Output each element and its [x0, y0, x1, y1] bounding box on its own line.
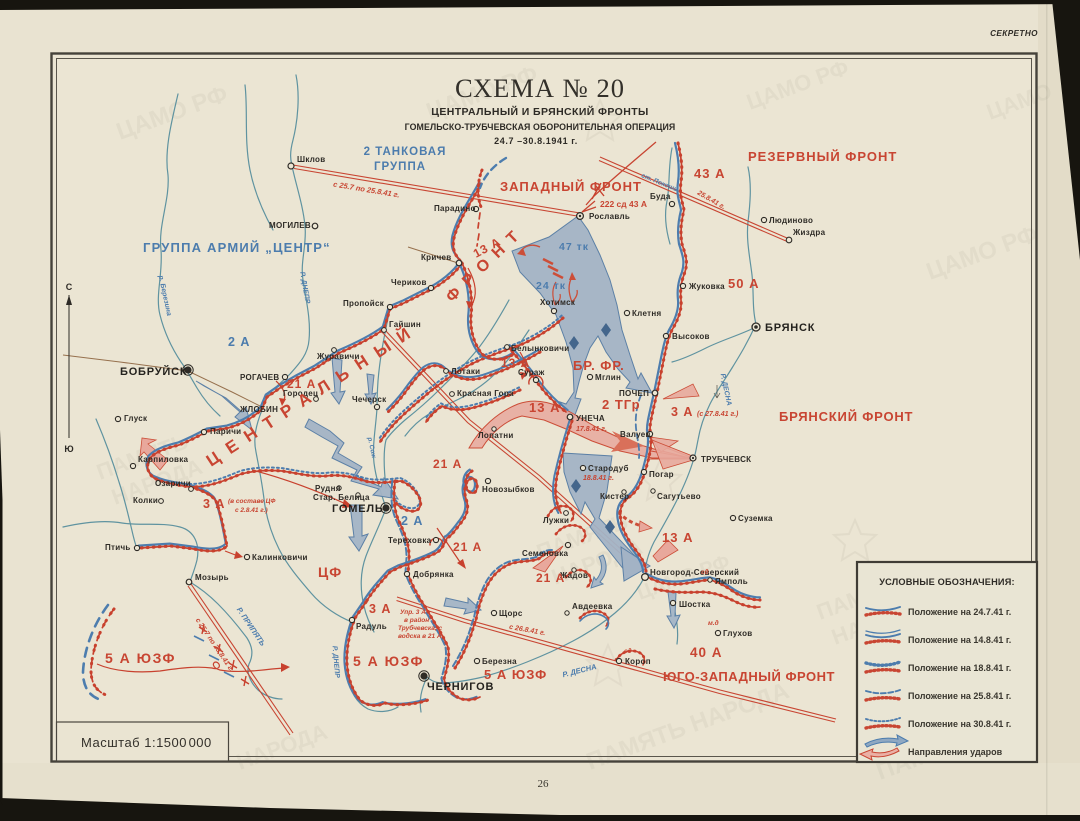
svg-text:Положение на 14.8.41 г.: Положение на 14.8.41 г.: [908, 635, 1011, 645]
svg-text:5 А ЮЗФ: 5 А ЮЗФ: [353, 653, 424, 669]
svg-text:Лужки: Лужки: [543, 516, 569, 525]
svg-text:Лопатни: Лопатни: [478, 431, 514, 440]
svg-text:Белынковичи: Белынковичи: [511, 344, 569, 353]
svg-text:Птичь: Птичь: [105, 543, 131, 552]
svg-text:Стародуб: Стародуб: [588, 464, 629, 473]
svg-text:Масштаб 1:1500 000: Масштаб 1:1500 000: [81, 735, 212, 750]
svg-text:Кричев: Кричев: [421, 253, 452, 262]
svg-text:Суземка: Суземка: [738, 514, 773, 523]
svg-text:21 А: 21 А: [453, 540, 482, 554]
svg-text:Тереховка: Тереховка: [388, 536, 432, 545]
svg-text:Положение на 30.8.41 г.: Положение на 30.8.41 г.: [908, 719, 1011, 729]
svg-text:ГОМЕЛЬСКО-ТРУБЧЕВСКАЯ ОБОРОНИ: ГОМЕЛЬСКО-ТРУБЧЕВСКАЯ ОБОРОНИТЕЛЬНАЯ ОПЕ…: [405, 122, 676, 132]
svg-text:БРЯНСК: БРЯНСК: [765, 322, 815, 334]
svg-text:Короп: Короп: [625, 657, 651, 666]
svg-text:Пропойск: Пропойск: [343, 299, 385, 308]
svg-text:Ямполь: Ямполь: [715, 577, 748, 586]
svg-text:5 А ЮЗФ: 5 А ЮЗФ: [105, 650, 176, 666]
svg-text:Добрянка: Добрянка: [413, 570, 454, 579]
svg-text:21 А: 21 А: [433, 457, 462, 471]
svg-text:3 А: 3 А: [369, 602, 391, 616]
svg-text:с 2.8.41 г.): с 2.8.41 г.): [235, 507, 268, 514]
svg-text:Высоков: Высоков: [672, 332, 710, 341]
svg-text:5 А ЮЗФ: 5 А ЮЗФ: [484, 667, 547, 682]
svg-text:3 А: 3 А: [203, 497, 225, 511]
svg-text:Озаричи: Озаричи: [155, 479, 191, 488]
svg-text:Шклов: Шклов: [297, 155, 325, 164]
svg-text:МОГИЛЕВ: МОГИЛЕВ: [269, 221, 311, 230]
svg-text:Жуковка: Жуковка: [688, 282, 725, 291]
svg-text:УСЛОВНЫЕ ОБОЗНАЧЕНИЯ:: УСЛОВНЫЕ ОБОЗНАЧЕНИЯ:: [879, 577, 1015, 587]
svg-text:Хотимск: Хотимск: [540, 298, 576, 307]
svg-text:Погар: Погар: [649, 470, 674, 479]
svg-text:Шостка: Шостка: [679, 600, 711, 609]
svg-text:Рудня: Рудня: [315, 484, 341, 493]
svg-text:Глухов: Глухов: [723, 629, 753, 638]
svg-text:Жиздра: Жиздра: [792, 228, 826, 237]
svg-text:Колки: Колки: [133, 496, 158, 505]
svg-text:2 А: 2 А: [401, 514, 423, 528]
svg-text:СХЕМА № 20: СХЕМА № 20: [455, 73, 625, 103]
svg-text:Положение на 25.8.41 г.: Положение на 25.8.41 г.: [908, 691, 1011, 701]
svg-text:Мглин: Мглин: [595, 373, 621, 382]
svg-text:Парадино: Парадино: [434, 204, 476, 213]
svg-text:Березна: Березна: [482, 657, 517, 666]
svg-text:ТРУБЧЕВСК: ТРУБЧЕВСК: [701, 455, 751, 464]
svg-text:Глуск: Глуск: [124, 414, 148, 423]
svg-text:УНЕЧА: УНЕЧА: [576, 414, 605, 423]
svg-text:Положение на 18.8.41 г.: Положение на 18.8.41 г.: [908, 663, 1011, 673]
svg-text:Ю: Ю: [64, 444, 73, 454]
svg-text:47 тк: 47 тк: [559, 241, 589, 253]
svg-text:Рославль: Рославль: [589, 212, 630, 221]
svg-text:13 А: 13 А: [501, 356, 530, 370]
svg-text:ЮГО-ЗАПАДНЫЙ ФРОНТ: ЮГО-ЗАПАДНЫЙ ФРОНТ: [663, 669, 835, 684]
svg-text:Семеновка: Семеновка: [522, 549, 569, 558]
svg-text:Авдеевка: Авдеевка: [572, 602, 613, 611]
svg-text:БРЯНСКИЙ ФРОНТ: БРЯНСКИЙ ФРОНТ: [779, 409, 913, 424]
svg-text:Кистер: Кистер: [600, 492, 629, 501]
svg-text:ГОМЕЛЬ: ГОМЕЛЬ: [332, 503, 384, 515]
svg-text:Сагутьево: Сагутьево: [657, 492, 701, 501]
svg-text:17.8.41 г.: 17.8.41 г.: [576, 426, 607, 433]
svg-text:Чериков: Чериков: [391, 278, 427, 287]
svg-text:Новгород-Северский: Новгород-Северский: [650, 568, 739, 577]
svg-text:Чечерск: Чечерск: [352, 395, 387, 404]
svg-text:24.7 –30.8.1941 г.: 24.7 –30.8.1941 г.: [494, 136, 578, 146]
svg-text:(в составе ЦФ: (в составе ЦФ: [228, 498, 276, 505]
svg-text:21 А: 21 А: [287, 377, 316, 391]
svg-text:РЕЗЕРВНЫЙ ФРОНТ: РЕЗЕРВНЫЙ ФРОНТ: [748, 149, 897, 164]
svg-text:2 ТАНКОВАЯ: 2 ТАНКОВАЯ: [364, 146, 447, 158]
svg-text:ГРУППА: ГРУППА: [374, 161, 426, 173]
svg-text:Направления ударов: Направления ударов: [908, 747, 1003, 757]
svg-text:сд: сд: [701, 568, 709, 576]
svg-text:2 А: 2 А: [228, 335, 250, 349]
svg-text:3 А: 3 А: [671, 405, 693, 419]
svg-text:Упр. 3 А: Упр. 3 А: [400, 609, 426, 616]
svg-text:Мозырь: Мозырь: [195, 573, 229, 582]
svg-text:БР. ФР.: БР. ФР.: [573, 358, 625, 373]
svg-text:Щорс: Щорс: [499, 609, 523, 618]
svg-text:2 ТГр: 2 ТГр: [602, 397, 641, 412]
svg-text:СЕКРЕТНО: СЕКРЕТНО: [990, 29, 1038, 38]
svg-text:ГРУППА АРМИЙ „ЦЕНТР“: ГРУППА АРМИЙ „ЦЕНТР“: [143, 240, 331, 255]
svg-text:Калинковичи: Калинковичи: [252, 553, 308, 562]
svg-text:Клетня: Клетня: [632, 309, 661, 318]
svg-text:21 А: 21 А: [536, 571, 565, 585]
svg-text:ЧЕРНИГОВ: ЧЕРНИГОВ: [427, 681, 494, 693]
svg-text:Валуец: Валуец: [620, 430, 651, 439]
svg-text:ЦФ: ЦФ: [318, 564, 342, 580]
svg-text:222 сд 43 А: 222 сд 43 А: [600, 199, 647, 209]
svg-text:Буда: Буда: [650, 192, 671, 201]
svg-text:43 А: 43 А: [694, 166, 725, 181]
svg-text:18.8.41 г.: 18.8.41 г.: [583, 475, 614, 482]
svg-text:в район: в район: [404, 616, 429, 624]
svg-text:РОГАЧЕВ: РОГАЧЕВ: [240, 373, 280, 382]
svg-text:Трубчевска, с: Трубчевска, с: [398, 624, 442, 632]
svg-text:26: 26: [538, 778, 550, 790]
svg-text:Лотаки: Лотаки: [451, 367, 480, 376]
svg-text:С: С: [66, 282, 73, 292]
svg-text:(с 27.8.41 г.): (с 27.8.41 г.): [697, 411, 739, 418]
svg-text:13 А: 13 А: [662, 530, 693, 545]
svg-text:13 А: 13 А: [529, 400, 560, 415]
svg-text:Положение на 24.7.41 г.: Положение на 24.7.41 г.: [908, 607, 1011, 617]
svg-text:ЗАПАДНЫЙ ФРОНТ: ЗАПАДНЫЙ ФРОНТ: [500, 179, 642, 194]
svg-text:40 А: 40 А: [690, 645, 723, 660]
svg-text:ЦЕНТРАЛЬНЫЙ И БРЯНСКИЙ ФРОН: ЦЕНТРАЛЬНЫЙ И БРЯНСКИЙ ФРОНТЫ: [431, 105, 648, 118]
svg-text:24 тк: 24 тк: [536, 280, 566, 292]
svg-text:водска в 21 А: водска в 21 А: [398, 632, 442, 640]
svg-text:БОБРУЙСК: БОБРУЙСК: [120, 365, 187, 378]
svg-text:Новозыбков: Новозыбков: [482, 485, 535, 494]
svg-text:Карпиловка: Карпиловка: [138, 455, 189, 464]
svg-text:Радуль: Радуль: [356, 622, 387, 631]
svg-text:Людиново: Людиново: [769, 216, 813, 225]
svg-text:Красная Гора: Красная Гора: [457, 389, 514, 398]
svg-text:Стар. Белица: Стар. Белица: [313, 493, 370, 502]
svg-text:м.д: м.д: [708, 619, 719, 627]
svg-text:50 А: 50 А: [728, 276, 759, 291]
svg-text:сд: сд: [624, 647, 632, 655]
